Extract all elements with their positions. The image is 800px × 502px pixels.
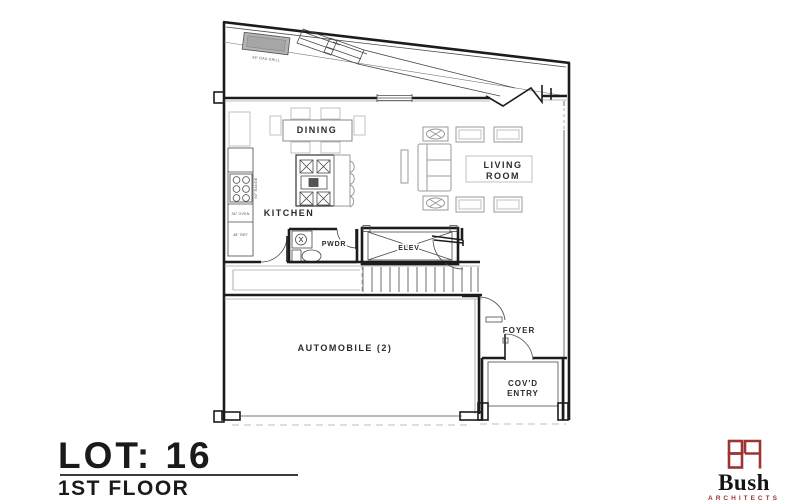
floor-plan-drawing: 36" GAS GRILL (0, 0, 800, 500)
deck-stairs (297, 29, 515, 96)
elevator: ELEV (362, 226, 458, 265)
side-table-top (423, 127, 448, 141)
logo-subtitle: ARCHITECTS (699, 495, 789, 502)
gas-grill (242, 32, 290, 54)
ba-monogram-icon (723, 438, 765, 471)
automobile-label: AUTOMOBILE (2) (298, 343, 393, 353)
floor-plan-sheet: { "plan": { "dining": "DINING", "kitchen… (0, 0, 800, 500)
side-table-bottom (423, 196, 448, 210)
landing-outline (233, 270, 360, 290)
floor-subtitle: 1ST FLOOR (58, 477, 298, 501)
logo-name: Bush (699, 471, 789, 494)
range-note: 60" RANGE (254, 177, 258, 198)
title-block: LOT: 16 1ST FLOOR (58, 437, 298, 501)
dining-area: DINING (270, 108, 365, 153)
roof-deck: 36" GAS GRILL (224, 29, 560, 96)
pwdr-toilet (292, 250, 321, 262)
living-room-label-2: ROOM (486, 171, 520, 181)
grill-note: 36" GAS GRILL (252, 55, 280, 62)
entry-door-arc (505, 334, 533, 360)
kitchen-label: KITCHEN (264, 208, 315, 218)
living-room-area: LIVING ROOM (401, 127, 532, 212)
covd-entry-label-1: COV'D (508, 379, 538, 388)
bush-architects-logo: Bush ARCHITECTS (699, 438, 789, 502)
kitchen-island (296, 155, 354, 207)
foyer-label: FOYER (503, 326, 536, 335)
island-counter (334, 155, 350, 206)
pwdr-label: PWDR (322, 241, 347, 248)
island-stools (350, 161, 354, 207)
pwdr-sink (292, 231, 312, 248)
kitchen-door-arc (261, 236, 287, 262)
covd-entry-label-2: ENTRY (507, 389, 539, 398)
window (377, 94, 412, 102)
buffet-cabinet (229, 112, 250, 146)
range-burners (230, 174, 252, 202)
stair-treads (363, 267, 478, 292)
garage: AUTOMOBILE (2) (222, 295, 482, 425)
covered-entry: COV'D ENTRY (478, 358, 568, 424)
powder-room: PWDR (289, 229, 357, 263)
living-room-label-1: LIVING (483, 160, 522, 170)
foyer-door-arc (479, 297, 505, 320)
dining-label: DINING (297, 125, 338, 135)
foyer-door-leaf (486, 317, 502, 322)
console-table (401, 150, 408, 183)
elev-label: ELEV (398, 245, 419, 252)
ref-note: 48" REF (233, 233, 248, 237)
oven-note: 36" OVEN (231, 212, 249, 216)
lot-title: LOT: 16 (58, 437, 298, 474)
sofa (418, 144, 451, 191)
